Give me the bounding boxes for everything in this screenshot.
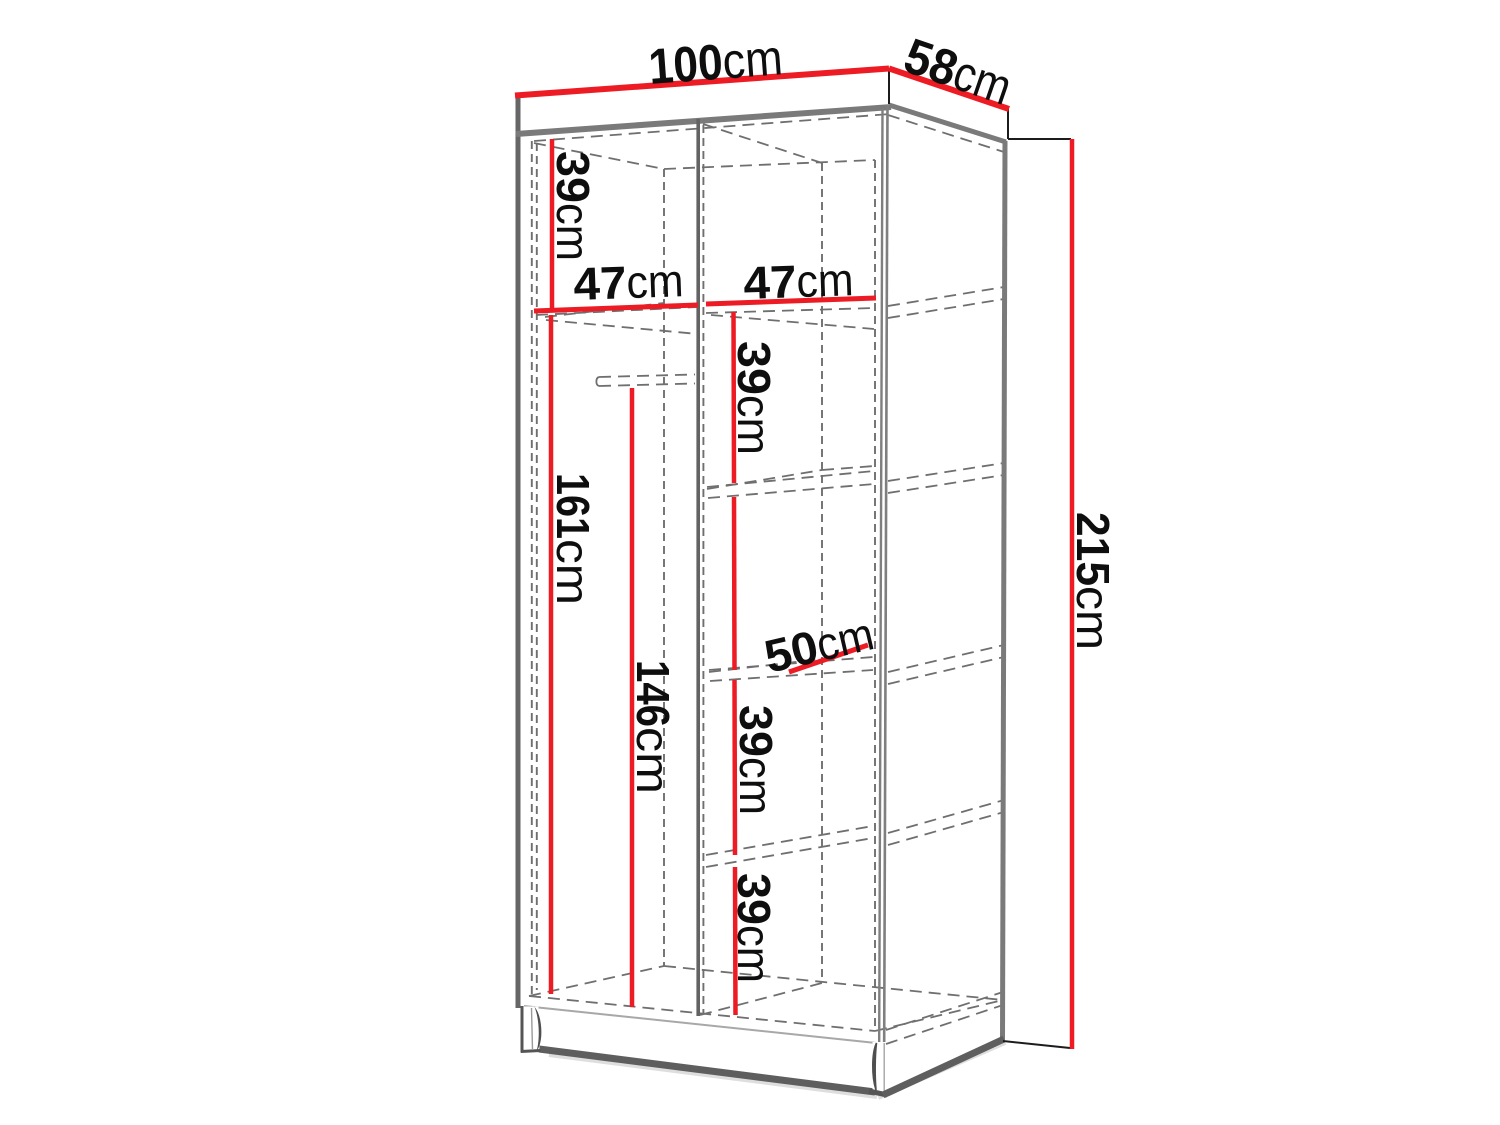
svg-text:39cm: 39cm: [730, 705, 782, 815]
svg-text:39cm: 39cm: [547, 151, 599, 261]
svg-text:161cm: 161cm: [547, 473, 599, 605]
svg-text:215cm: 215cm: [1067, 512, 1119, 650]
svg-text:39cm: 39cm: [728, 873, 780, 983]
svg-text:100cm: 100cm: [647, 29, 785, 95]
svg-text:146cm: 146cm: [627, 660, 679, 794]
svg-text:39cm: 39cm: [728, 341, 780, 455]
svg-text:47cm: 47cm: [573, 254, 685, 310]
svg-text:47cm: 47cm: [743, 253, 855, 309]
